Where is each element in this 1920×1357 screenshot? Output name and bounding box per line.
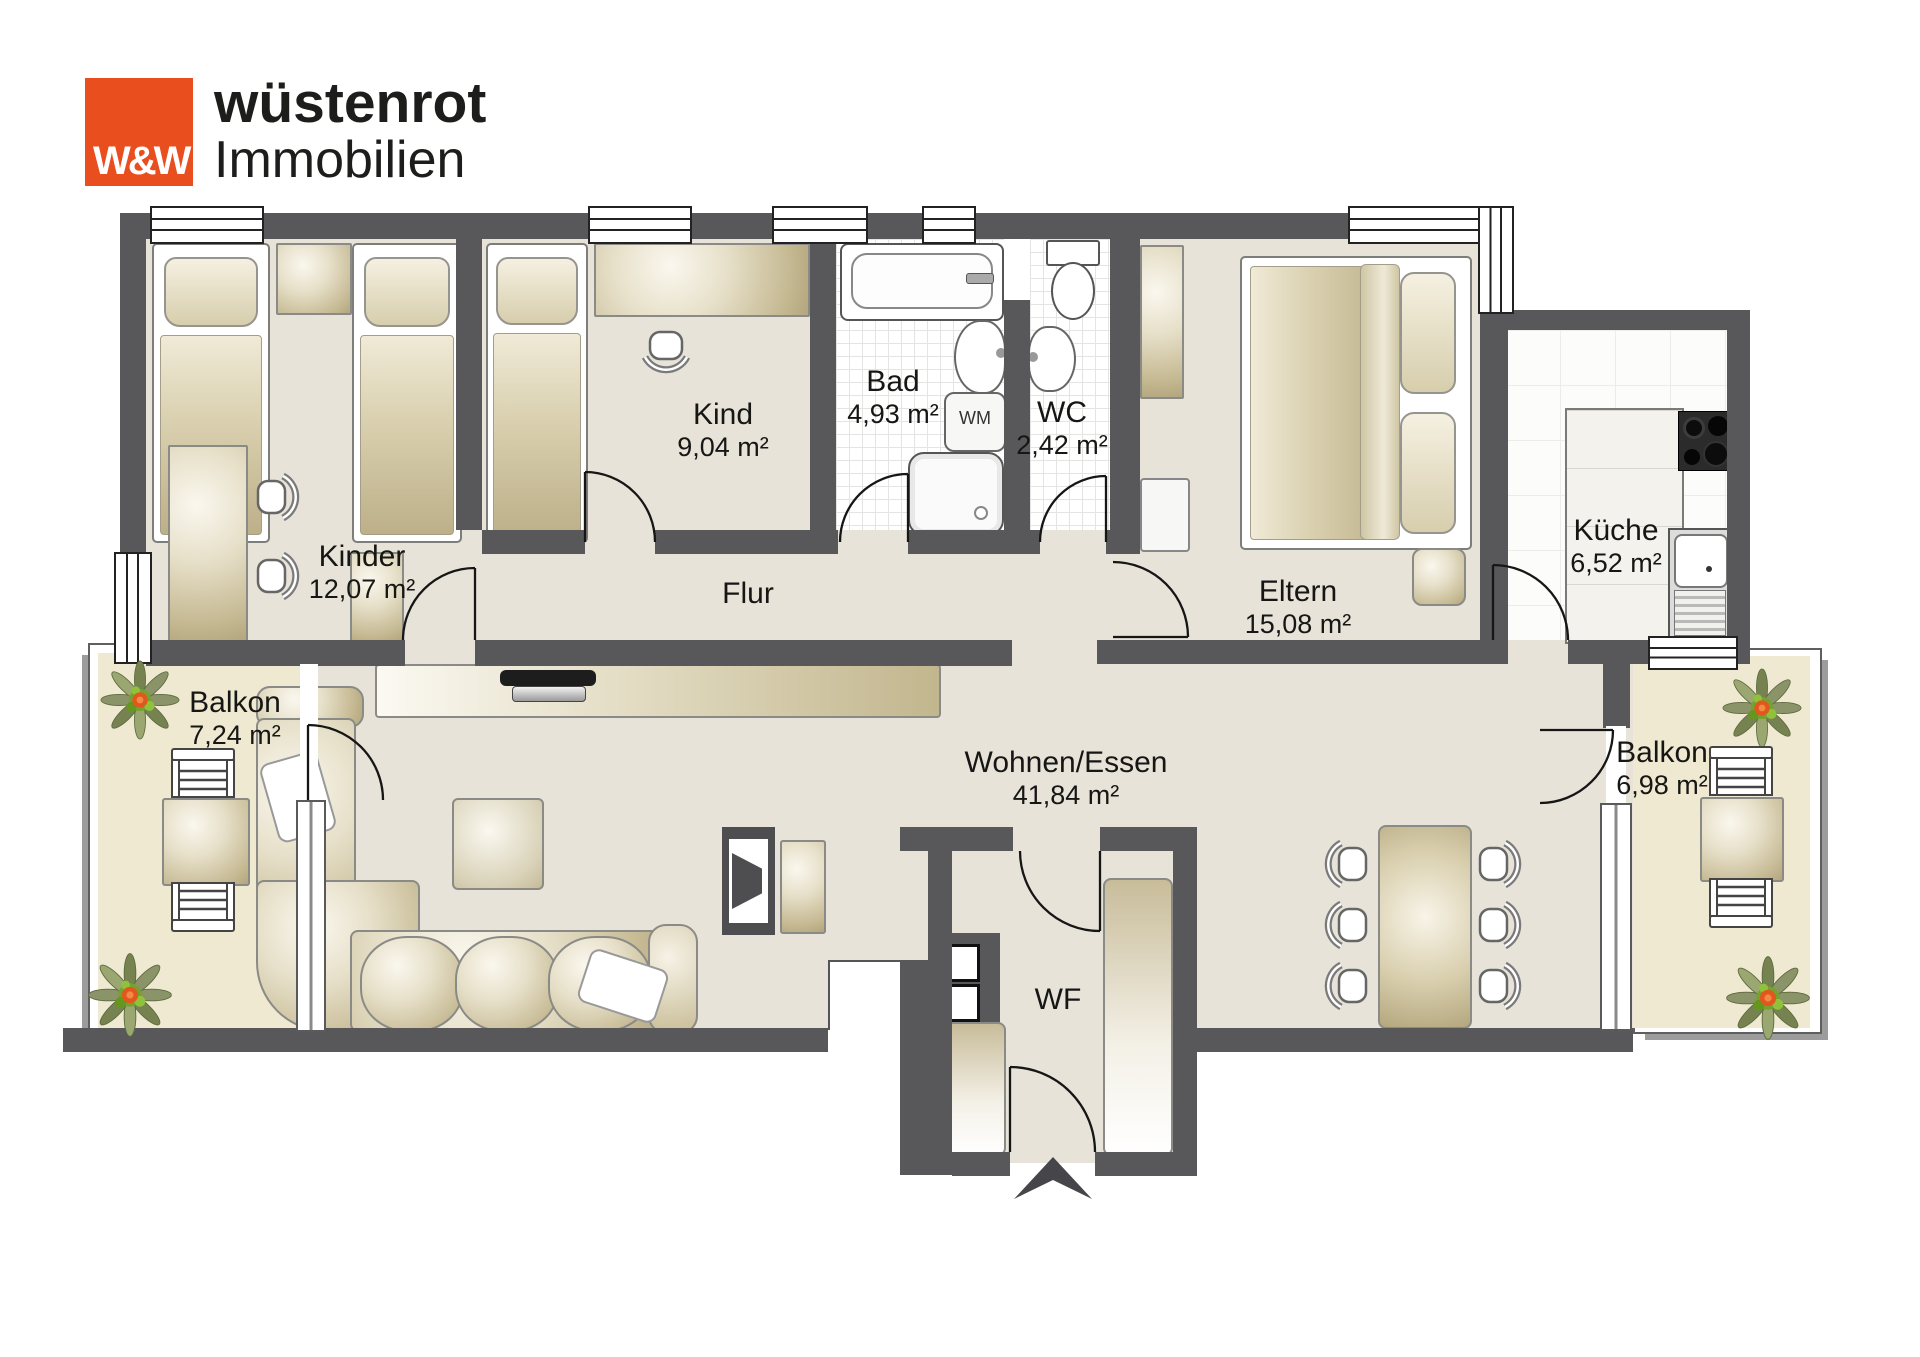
wall-wc-eltern: [1110, 239, 1140, 554]
wf-closet-right: [1103, 878, 1173, 1156]
burner-icon: [1708, 416, 1728, 436]
pillow: [496, 257, 578, 325]
doorway-balcony-left: [300, 664, 318, 802]
pillow: [164, 257, 258, 327]
shaft: [1004, 239, 1030, 300]
room-name: Balkon: [189, 686, 281, 720]
brand-line2: Immobilien: [214, 130, 465, 190]
wall-wf-left: [928, 827, 952, 960]
wall-living-top: [475, 640, 1012, 666]
room-name: Küche: [1570, 514, 1662, 548]
desk-kind: [594, 243, 810, 317]
burner-icon: [1683, 417, 1705, 439]
tv-stand: [512, 686, 586, 702]
wall-flur-seg: [1106, 530, 1140, 554]
floorplan-canvas: WM: [0, 0, 1920, 1357]
label-balkon-links: Balkon 7,24 m²: [189, 686, 281, 750]
coffee-table: [452, 798, 544, 890]
label-eltern: Eltern 15,08 m²: [1245, 575, 1352, 639]
bed-eltern: [1240, 256, 1472, 550]
balcony-table-right: [1700, 797, 1784, 882]
blanket: [493, 333, 581, 536]
shower: [908, 452, 1004, 536]
tv: [500, 670, 596, 686]
wall-kinder-bottom: [146, 640, 405, 666]
window-living-right: [1600, 803, 1632, 1031]
burner-icon: [1684, 449, 1700, 465]
room-area: 6,98 m²: [1616, 770, 1708, 800]
sofa-cushion: [455, 936, 559, 1032]
room-name: WF: [1035, 983, 1082, 1017]
wall-living-right-top: [1603, 640, 1630, 728]
room-name: Bad: [847, 365, 939, 399]
wall-flur-seg: [655, 530, 838, 554]
logo-monogram: W&W: [93, 139, 188, 184]
nightstand: [1412, 548, 1466, 606]
wall-kind-bad: [810, 239, 836, 530]
sofa-cushion: [360, 936, 464, 1032]
bed-kinder-2: [352, 243, 462, 543]
brand-line1: wüstenrot: [214, 70, 486, 136]
label-wf: WF: [1035, 983, 1082, 1017]
pillow: [1400, 412, 1456, 534]
room-name: Balkon: [1616, 736, 1708, 770]
room-area: 7,24 m²: [189, 720, 281, 750]
window-eltern-corner-v: [1478, 206, 1514, 314]
wall-wf-top-left: [900, 827, 1013, 851]
wardrobe-eltern: [1140, 245, 1184, 399]
balcony-table-left: [162, 798, 250, 886]
label-balkon-rechts: Balkon 6,98 m²: [1616, 736, 1708, 800]
window-kind-top: [588, 206, 692, 244]
room-name: Kind: [677, 398, 769, 432]
label-wc: WC 2,42 m²: [1016, 396, 1108, 460]
entrance-arrow-icon: [1014, 1157, 1092, 1199]
wall-kueche-top: [1480, 310, 1750, 330]
shower-drain-icon: [974, 506, 988, 520]
bed-kind: [486, 243, 588, 543]
faucet-icon: [1706, 566, 1712, 572]
cabinet-eltern: [1140, 478, 1190, 552]
window-living-left: [296, 800, 326, 1032]
room-name: Kinder: [309, 540, 416, 574]
wall-kueche-bottom-seg: [1480, 640, 1493, 664]
blanket: [360, 335, 454, 535]
pillow: [1400, 272, 1456, 394]
wall-eltern-bottom: [1097, 640, 1480, 664]
room-area: 12,07 m²: [309, 574, 416, 604]
label-kueche: Küche 6,52 m²: [1570, 514, 1662, 578]
room-name: Eltern: [1245, 575, 1352, 609]
label-kind: Kind 9,04 m²: [677, 398, 769, 462]
blanket-fold: [1360, 264, 1400, 540]
sink-basin: [1674, 534, 1728, 588]
room-area: 4,93 m²: [847, 399, 939, 429]
kitchen-sink-unit: [1668, 528, 1734, 642]
wall-wf-right: [1173, 843, 1197, 1152]
window-bad-top: [772, 206, 868, 244]
room-name: Flur: [722, 577, 774, 611]
toilet-bowl: [1051, 262, 1095, 320]
wall-kinder-kind: [456, 239, 482, 530]
stove: [1678, 411, 1732, 471]
wall-flur-seg: [482, 530, 585, 554]
label-bad: Bad 4,93 m²: [847, 365, 939, 429]
fireplace: [722, 827, 775, 935]
wall-bottom-right: [1197, 1028, 1633, 1052]
wall-wf-left-lower: [900, 960, 952, 1175]
sink-bad: [954, 320, 1006, 394]
sideboard: [375, 664, 941, 718]
window-wc-top: [922, 206, 976, 244]
sink-wc: [1028, 326, 1076, 392]
cabinet-living: [780, 840, 826, 934]
burner-icon: [1703, 441, 1729, 467]
sink-drainer: [1674, 590, 1726, 636]
wall-wf-bottom-seg: [1095, 1152, 1197, 1176]
window-kinder-top: [150, 206, 264, 244]
washing-machine: WM: [944, 392, 1006, 452]
room-name: Wohnen/Essen: [965, 746, 1168, 780]
bathtub-faucet-icon: [966, 273, 994, 284]
label-wohnen-essen: Wohnen/Essen 41,84 m²: [965, 746, 1168, 810]
exterior-notch: [828, 960, 902, 1030]
room-name: WC: [1016, 396, 1108, 430]
wall-flur-seg: [908, 530, 1040, 554]
window-kinder-left: [114, 552, 152, 664]
room-area: 6,52 m²: [1570, 548, 1662, 578]
room-area: 9,04 m²: [677, 432, 769, 462]
wall-bottom-left: [63, 1028, 828, 1052]
label-kinder: Kinder 12,07 m²: [309, 540, 416, 604]
wall-kueche-right: [1727, 310, 1750, 664]
wuestenrot-logo: W&W: [85, 78, 193, 186]
wm-label: WM: [946, 408, 1004, 429]
label-flur: Flur: [722, 577, 774, 611]
dining-table: [1378, 825, 1472, 1029]
pillow: [364, 257, 450, 327]
window-kueche: [1648, 636, 1738, 670]
room-area: 15,08 m²: [1245, 609, 1352, 639]
room-area: 2,42 m²: [1016, 430, 1108, 460]
desk-kinder: [168, 445, 248, 643]
wall-wf-bottom-seg: [952, 1152, 1010, 1176]
room-area: 41,84 m²: [965, 780, 1168, 810]
bathtub: [840, 243, 1004, 321]
wardrobe-kinder: [276, 243, 352, 315]
